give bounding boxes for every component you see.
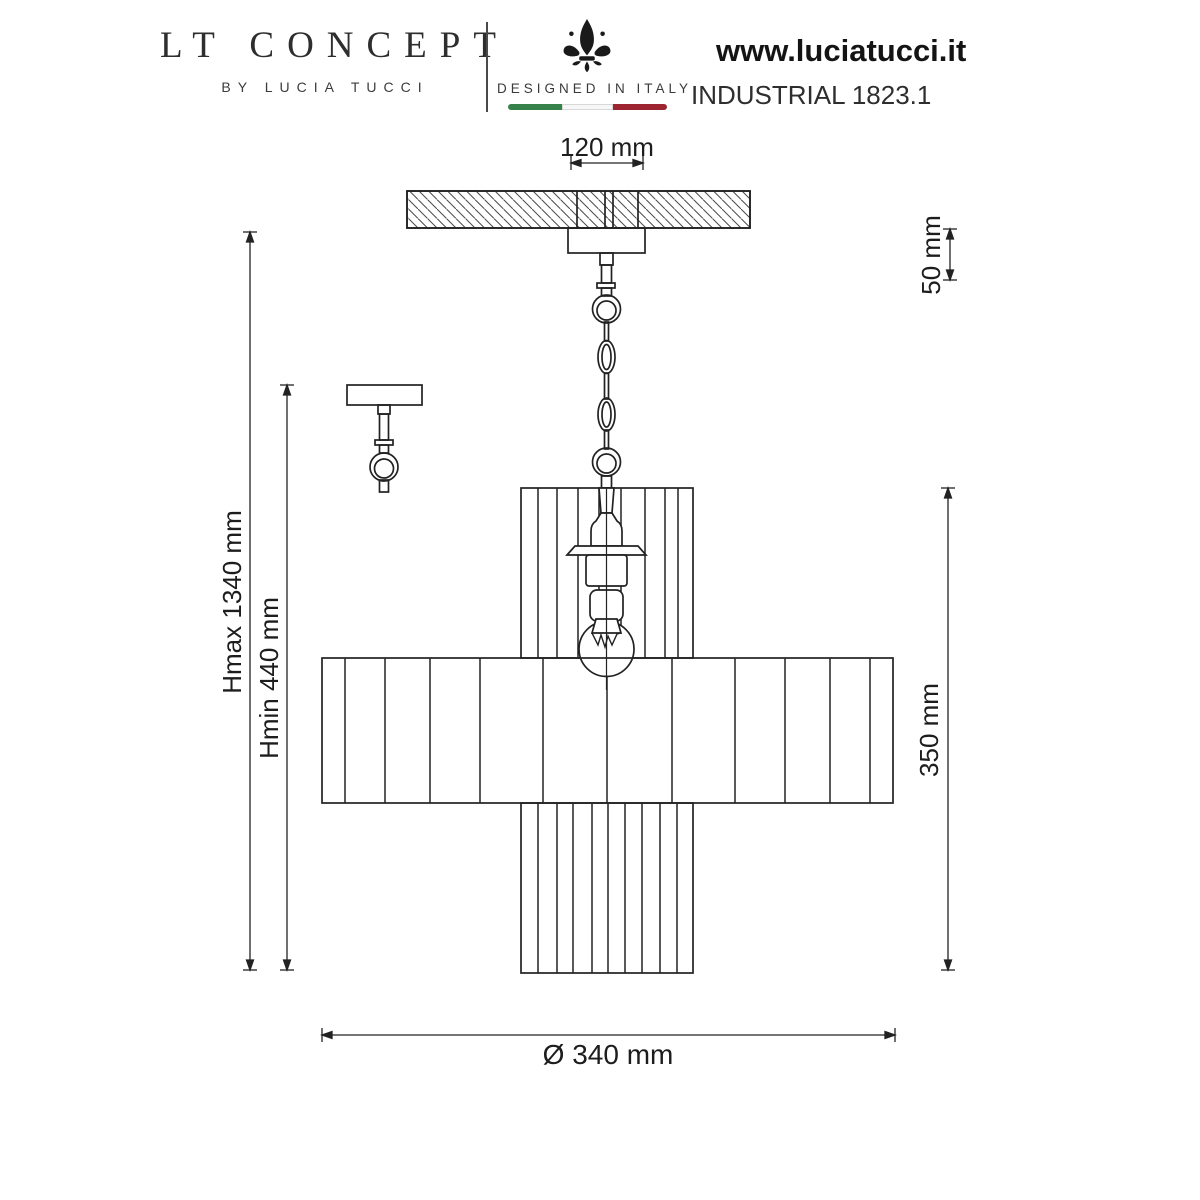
made-in-italy-block: DESIGNED IN ITALY (497, 14, 677, 96)
brand-title: LT CONCEPT (160, 24, 490, 67)
made-in-italy-label: DESIGNED IN ITALY (497, 81, 677, 96)
dim-label-canopy-width: 120 mm (507, 132, 707, 162)
product-code: INDUSTRIAL 1823.1 (691, 80, 931, 111)
brand-block: LT CONCEPT BY LUCIA TUCCI (160, 24, 490, 95)
shade-bottom-tier (521, 803, 693, 973)
flag-white (562, 104, 613, 110)
canopy (568, 228, 645, 296)
dim-label-shade-height: 350 mm (914, 660, 944, 800)
shade-middle-tier (322, 658, 893, 803)
mount-detail-view (347, 385, 422, 492)
technical-drawing (0, 0, 1200, 1200)
brand-subtitle: BY LUCIA TUCCI (160, 79, 490, 95)
dim-label-height-min: Hmin 440 mm (254, 578, 284, 778)
ceiling-section (407, 191, 750, 228)
flag-green (508, 104, 562, 110)
flag-red (613, 104, 667, 110)
dim-label-diameter: Ø 340 mm (458, 1040, 758, 1070)
italy-flag-icon (508, 104, 667, 110)
dim-label-height-max: Hmax 1340 mm (217, 492, 247, 712)
chain (593, 295, 621, 488)
website-text: www.luciatucci.it (716, 33, 966, 69)
header-divider (486, 22, 488, 112)
dim-label-top-offset: 50 mm (916, 195, 946, 315)
fleur-de-lis-icon (561, 14, 613, 76)
